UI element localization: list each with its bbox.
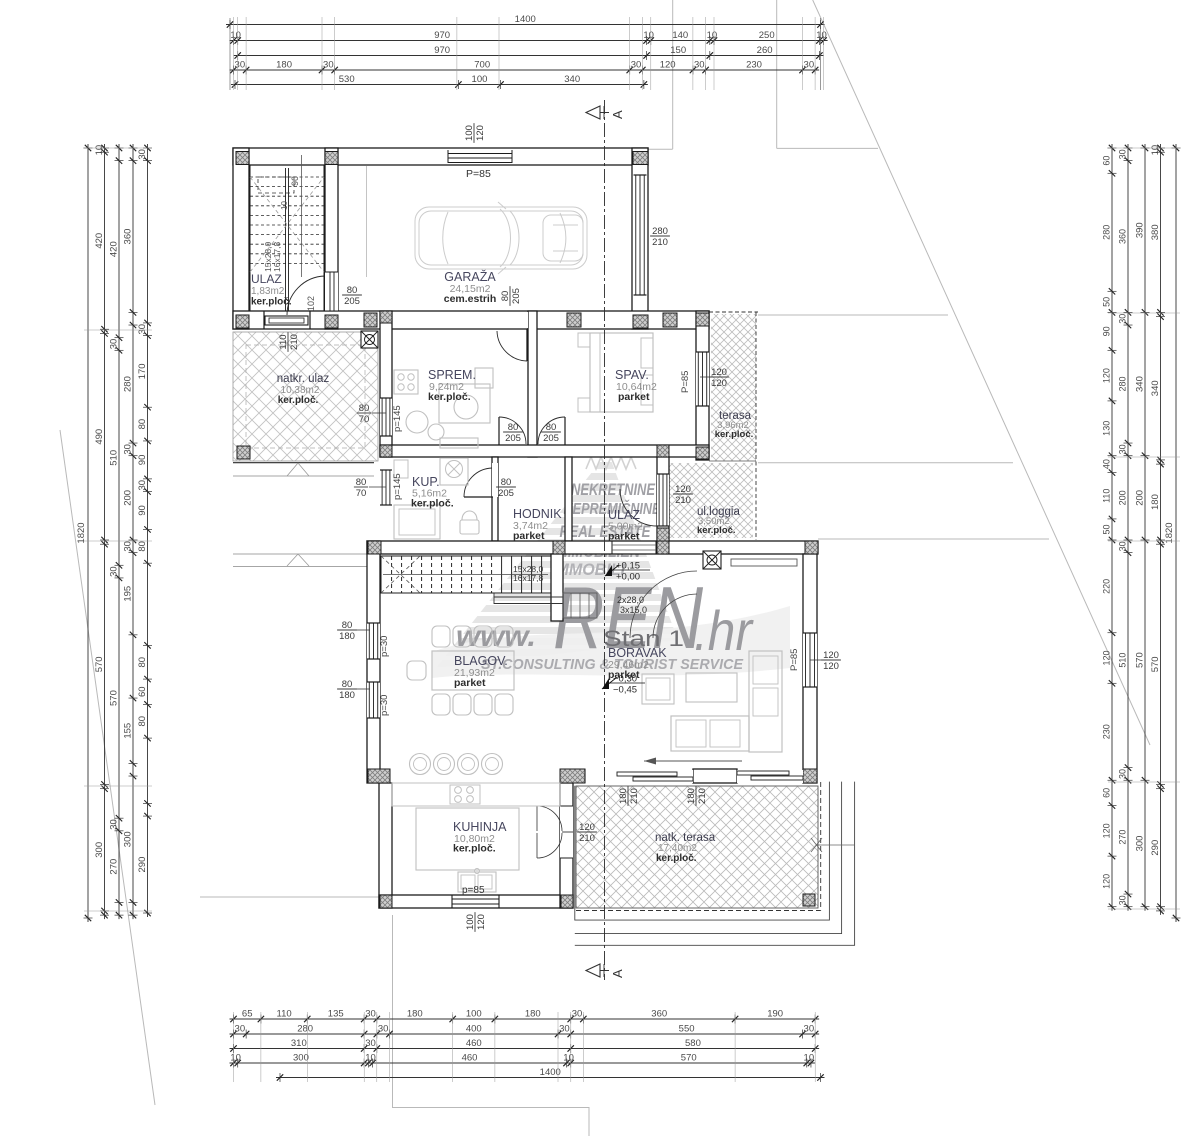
svg-text:ker.ploč.: ker.ploč. (428, 391, 471, 403)
svg-text:80: 80 (356, 477, 367, 488)
svg-text:ker.ploč.: ker.ploč. (697, 525, 736, 536)
svg-text:A: A (610, 969, 625, 978)
svg-text:200: 200 (1118, 490, 1128, 505)
svg-text:100: 100 (466, 1009, 482, 1020)
svg-text:30: 30 (1118, 314, 1128, 324)
svg-text:80: 80 (508, 422, 519, 433)
svg-text:570: 570 (109, 690, 120, 706)
svg-text:80: 80 (137, 419, 148, 430)
svg-text:290: 290 (137, 857, 148, 873)
svg-text:200: 200 (123, 490, 134, 506)
svg-text:230: 230 (746, 60, 762, 71)
svg-text:SPREM.: SPREM. (428, 368, 476, 382)
svg-text:30: 30 (109, 566, 120, 577)
svg-text:1820: 1820 (1164, 522, 1175, 543)
svg-text:30: 30 (235, 1024, 246, 1035)
svg-text:10: 10 (280, 201, 289, 210)
svg-text:120: 120 (475, 125, 486, 141)
svg-text:280: 280 (1102, 225, 1112, 240)
svg-text:A: A (610, 110, 625, 119)
svg-text:570: 570 (1135, 652, 1146, 668)
svg-text:www.: www. (456, 620, 536, 653)
svg-text:10: 10 (230, 1053, 241, 1064)
svg-text:30: 30 (1118, 769, 1128, 779)
svg-text:30: 30 (235, 60, 246, 71)
svg-text:190: 190 (767, 1009, 783, 1020)
svg-text:570: 570 (1150, 656, 1161, 672)
svg-text:80: 80 (137, 716, 148, 727)
svg-text:120: 120 (476, 914, 487, 930)
svg-text:180: 180 (407, 1009, 423, 1020)
svg-text:10: 10 (230, 30, 241, 41)
svg-text:180: 180 (618, 788, 629, 804)
svg-text:60: 60 (137, 686, 148, 697)
svg-text:205: 205 (543, 433, 559, 444)
svg-text:460: 460 (466, 1038, 482, 1049)
svg-text:p=145: p=145 (392, 473, 403, 500)
svg-text:40: 40 (1102, 459, 1112, 469)
svg-text:P=85: P=85 (680, 371, 691, 393)
svg-text:570: 570 (94, 656, 105, 672)
svg-text:80: 80 (342, 620, 353, 631)
svg-text:220: 220 (1102, 579, 1112, 594)
svg-text:KUHINJA: KUHINJA (453, 820, 507, 834)
svg-text:130: 130 (1102, 421, 1112, 436)
svg-text:120: 120 (1102, 874, 1112, 889)
svg-text:P=85: P=85 (466, 168, 491, 180)
svg-text:90: 90 (137, 505, 148, 516)
svg-text:1820: 1820 (76, 522, 87, 543)
svg-text:−0,45: −0,45 (613, 685, 637, 696)
svg-text:200: 200 (1135, 490, 1146, 506)
svg-text:ULAZ: ULAZ (251, 272, 282, 286)
svg-text:120: 120 (1102, 823, 1112, 838)
svg-text:360: 360 (651, 1009, 667, 1020)
svg-text:80: 80 (501, 477, 512, 488)
svg-text:30: 30 (572, 1009, 583, 1020)
svg-text:30: 30 (694, 60, 705, 71)
svg-text:50: 50 (1102, 524, 1112, 534)
svg-text:60: 60 (1102, 788, 1112, 798)
svg-text:120: 120 (823, 650, 839, 661)
svg-text:210: 210 (289, 334, 300, 350)
svg-text:p=85: p=85 (462, 885, 485, 896)
svg-text:195: 195 (123, 586, 134, 602)
svg-text:210: 210 (629, 788, 640, 804)
svg-text:10: 10 (94, 145, 105, 156)
svg-text:ker.ploč.: ker.ploč. (278, 395, 319, 406)
svg-text:parket: parket (513, 530, 545, 542)
svg-text:205: 205 (511, 288, 522, 304)
svg-text:120: 120 (1102, 650, 1112, 665)
svg-text:70: 70 (356, 488, 367, 499)
svg-text:ker.ploč.: ker.ploč. (251, 297, 292, 308)
svg-text:300: 300 (123, 831, 134, 847)
svg-text:16x17,8: 16x17,8 (272, 241, 282, 272)
svg-text:700: 700 (474, 60, 490, 71)
svg-text:30: 30 (123, 444, 134, 455)
svg-text:270: 270 (1118, 830, 1128, 845)
svg-text:10: 10 (1150, 145, 1161, 156)
svg-text:2x28,0: 2x28,0 (617, 595, 644, 605)
svg-text:90: 90 (137, 455, 148, 466)
svg-text:180: 180 (339, 690, 355, 701)
svg-text:300: 300 (94, 842, 105, 858)
svg-text:270: 270 (109, 859, 120, 875)
svg-text:cem.estrih: cem.estrih (444, 293, 497, 305)
svg-text:100: 100 (465, 914, 476, 930)
svg-text:30: 30 (1118, 541, 1128, 551)
svg-text:30: 30 (109, 819, 120, 830)
svg-text:30: 30 (109, 339, 120, 350)
svg-text:120: 120 (675, 484, 691, 495)
svg-text:80: 80 (500, 291, 511, 302)
svg-text:70: 70 (359, 414, 370, 425)
svg-text:580: 580 (685, 1038, 701, 1049)
svg-text:30: 30 (1118, 895, 1128, 905)
svg-text:530: 530 (339, 74, 355, 85)
svg-text:360: 360 (123, 229, 134, 245)
svg-text:80: 80 (342, 679, 353, 690)
svg-text:300: 300 (1135, 836, 1146, 852)
svg-text:1,83m2: 1,83m2 (251, 286, 285, 297)
svg-text:16x17,8: 16x17,8 (513, 573, 544, 583)
svg-text:205: 205 (505, 433, 521, 444)
svg-text:420: 420 (94, 233, 105, 249)
svg-text:280: 280 (652, 226, 668, 237)
svg-text:120: 120 (823, 661, 839, 672)
svg-text:310: 310 (291, 1038, 307, 1049)
svg-text:BORAVAK: BORAVAK (608, 646, 667, 660)
svg-text:30: 30 (804, 60, 815, 71)
svg-text:460: 460 (462, 1053, 478, 1064)
svg-text:510: 510 (1118, 653, 1128, 668)
svg-text:250: 250 (759, 30, 775, 41)
svg-text:550: 550 (679, 1024, 695, 1035)
svg-text:140: 140 (672, 30, 688, 41)
svg-text:150: 150 (670, 45, 686, 56)
svg-text:30: 30 (365, 1009, 376, 1020)
svg-text:p=145: p=145 (392, 405, 403, 432)
svg-text:570: 570 (681, 1053, 697, 1064)
svg-text:100: 100 (464, 125, 475, 141)
svg-text:180: 180 (339, 631, 355, 642)
svg-text:30: 30 (123, 541, 134, 552)
svg-text:110: 110 (277, 1009, 292, 1020)
svg-text:30: 30 (1118, 149, 1128, 159)
svg-text:970: 970 (434, 30, 450, 41)
svg-text:SPAV.: SPAV. (615, 368, 649, 382)
svg-text:970: 970 (434, 45, 450, 56)
svg-text:65: 65 (242, 1009, 253, 1020)
svg-text:30: 30 (323, 60, 334, 71)
svg-text:30: 30 (804, 1024, 815, 1035)
svg-text:120: 120 (711, 367, 727, 378)
svg-text:GARAŽA: GARAŽA (444, 269, 496, 284)
svg-text:120: 120 (1102, 368, 1112, 383)
svg-text:280: 280 (123, 376, 134, 392)
svg-text:230: 230 (1102, 724, 1112, 739)
svg-text:290: 290 (1150, 840, 1161, 856)
svg-text:80: 80 (359, 403, 370, 414)
svg-text:parket: parket (454, 677, 486, 689)
svg-text:30: 30 (559, 1024, 570, 1035)
svg-text:30: 30 (365, 1038, 376, 1049)
svg-text:natkr. ulaz: natkr. ulaz (277, 373, 330, 385)
svg-text:+0,15: +0,15 (616, 561, 640, 572)
svg-text:ker.ploč.: ker.ploč. (656, 853, 697, 864)
svg-text:390: 390 (1135, 222, 1146, 238)
svg-text:120: 120 (579, 822, 595, 833)
svg-text:490: 490 (94, 429, 105, 445)
svg-text:30: 30 (137, 149, 148, 160)
svg-text:10: 10 (804, 1053, 815, 1064)
svg-text:360: 360 (1118, 229, 1128, 244)
svg-text:120: 120 (711, 378, 727, 389)
svg-text:110: 110 (1102, 489, 1112, 503)
svg-text:10: 10 (643, 30, 654, 41)
svg-text:parket: parket (608, 669, 640, 681)
svg-text:p=30: p=30 (379, 636, 390, 657)
svg-text:90: 90 (1102, 326, 1112, 336)
svg-text:ker.ploč.: ker.ploč. (715, 429, 754, 440)
svg-text:135: 135 (328, 1009, 344, 1020)
svg-text:10: 10 (563, 1053, 574, 1064)
svg-text:10: 10 (365, 1053, 376, 1064)
svg-text:180: 180 (1150, 494, 1161, 510)
svg-text:10: 10 (816, 30, 827, 41)
svg-text:170: 170 (137, 363, 148, 379)
svg-text:210: 210 (652, 237, 668, 248)
svg-text:340: 340 (564, 74, 580, 85)
svg-text:205: 205 (344, 296, 360, 307)
svg-text:210: 210 (579, 833, 595, 844)
svg-text:80: 80 (347, 285, 358, 296)
svg-text:.hr: .hr (694, 599, 754, 662)
svg-text:180: 180 (276, 60, 292, 71)
svg-text:NEKRETNINE: NEKRETNINE (571, 481, 656, 499)
svg-text:parket: parket (608, 531, 640, 543)
svg-text:ker.ploč.: ker.ploč. (453, 843, 496, 855)
svg-text:HODNIK: HODNIK (513, 507, 562, 521)
svg-text:+0,00: +0,00 (616, 572, 640, 583)
svg-text:260: 260 (757, 45, 773, 56)
svg-text:100: 100 (472, 74, 488, 85)
svg-text:155: 155 (123, 723, 134, 739)
svg-text:BLAGOV.: BLAGOV. (454, 654, 508, 668)
svg-text:50: 50 (1102, 297, 1112, 307)
svg-text:30: 30 (631, 60, 642, 71)
svg-text:340: 340 (1135, 376, 1146, 392)
svg-text:parket: parket (618, 391, 650, 403)
svg-text:30: 30 (1118, 444, 1128, 454)
svg-text:300: 300 (293, 1053, 309, 1064)
svg-text:120: 120 (660, 60, 676, 71)
svg-text:10: 10 (707, 30, 718, 41)
svg-text:380: 380 (1150, 224, 1161, 240)
svg-text:280: 280 (297, 1024, 313, 1035)
svg-text:80: 80 (137, 657, 148, 668)
svg-text:210: 210 (697, 788, 708, 804)
svg-text:110: 110 (278, 334, 289, 349)
svg-text:102: 102 (306, 296, 316, 311)
svg-text:30: 30 (137, 324, 148, 335)
svg-text:180: 180 (686, 788, 697, 804)
svg-text:180: 180 (525, 1009, 541, 1020)
svg-text:280: 280 (1118, 377, 1128, 392)
svg-text:80: 80 (137, 541, 148, 552)
svg-text:420: 420 (109, 241, 120, 257)
svg-text:60: 60 (1102, 156, 1112, 166)
svg-text:340: 340 (1150, 380, 1161, 396)
svg-text:30: 30 (137, 480, 148, 491)
svg-text:p=30: p=30 (379, 695, 390, 716)
svg-text:1400: 1400 (515, 14, 536, 25)
svg-text:80: 80 (546, 422, 557, 433)
svg-text:90: 90 (290, 176, 300, 186)
svg-text:3x15,0: 3x15,0 (620, 605, 647, 615)
svg-text:400: 400 (466, 1024, 482, 1035)
svg-text:P=85: P=85 (789, 649, 800, 671)
svg-text:210: 210 (675, 495, 691, 506)
svg-text:30: 30 (378, 1024, 389, 1035)
svg-text:205: 205 (498, 488, 514, 499)
svg-text:ker.ploč.: ker.ploč. (411, 498, 454, 510)
svg-text:510: 510 (109, 450, 120, 466)
svg-text:1400: 1400 (540, 1067, 561, 1078)
